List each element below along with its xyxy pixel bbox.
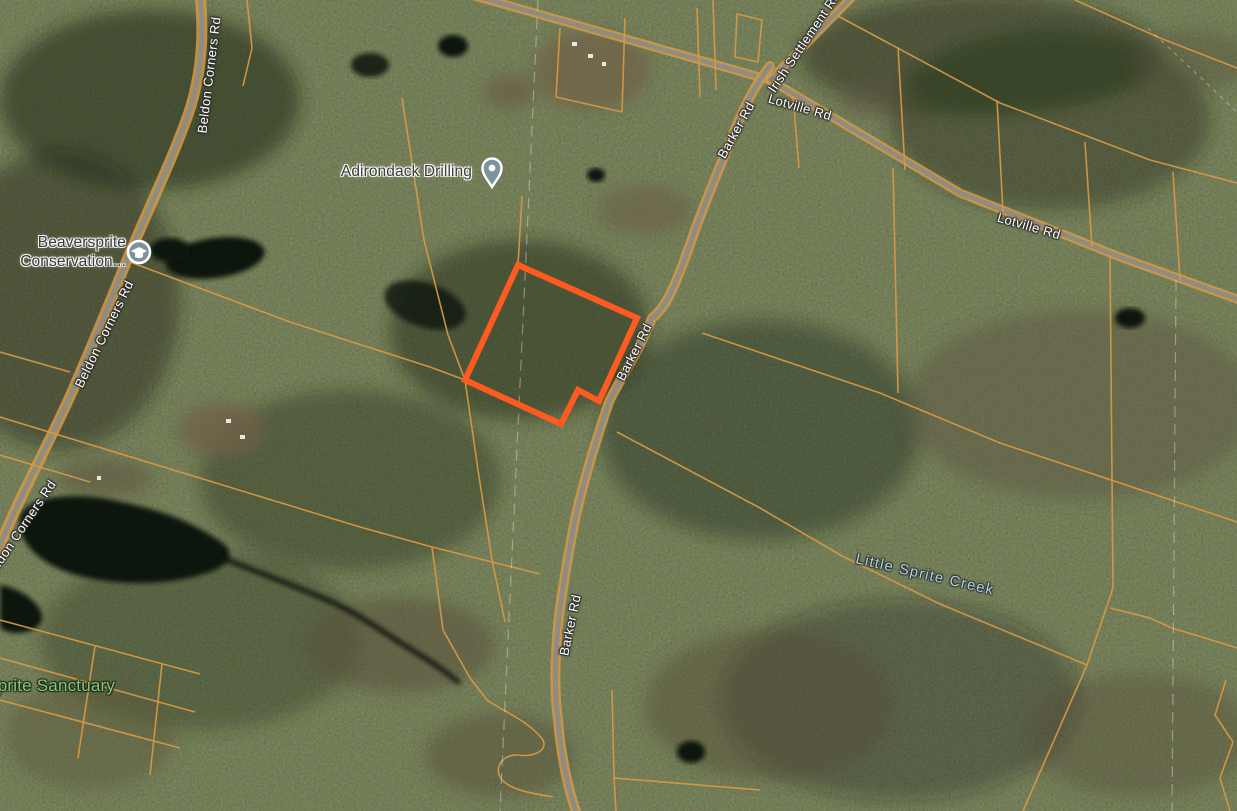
poi-label-line1: Beaversprite — [20, 233, 126, 252]
circular-poi-pin-icon[interactable] — [128, 241, 150, 263]
satellite-map-canvas[interactable]: Adirondack Drilling Beaversprite Conserv… — [0, 0, 1237, 811]
poi-label-beaversprite-conservation[interactable]: Beaversprite Conservation... — [20, 233, 126, 271]
pond — [150, 238, 190, 262]
poi-label-adirondack-drilling[interactable]: Adirondack Drilling — [341, 163, 472, 181]
pond — [677, 741, 705, 763]
map-artwork — [0, 0, 1237, 811]
poi-label-line2: Conservation... — [20, 252, 126, 271]
pond — [587, 168, 605, 182]
wetland — [351, 53, 389, 77]
pond — [1115, 308, 1145, 328]
park-label-beaversprite-sanctuary[interactable]: Beaversprite Sanctuary — [0, 676, 115, 696]
pond — [438, 35, 468, 57]
